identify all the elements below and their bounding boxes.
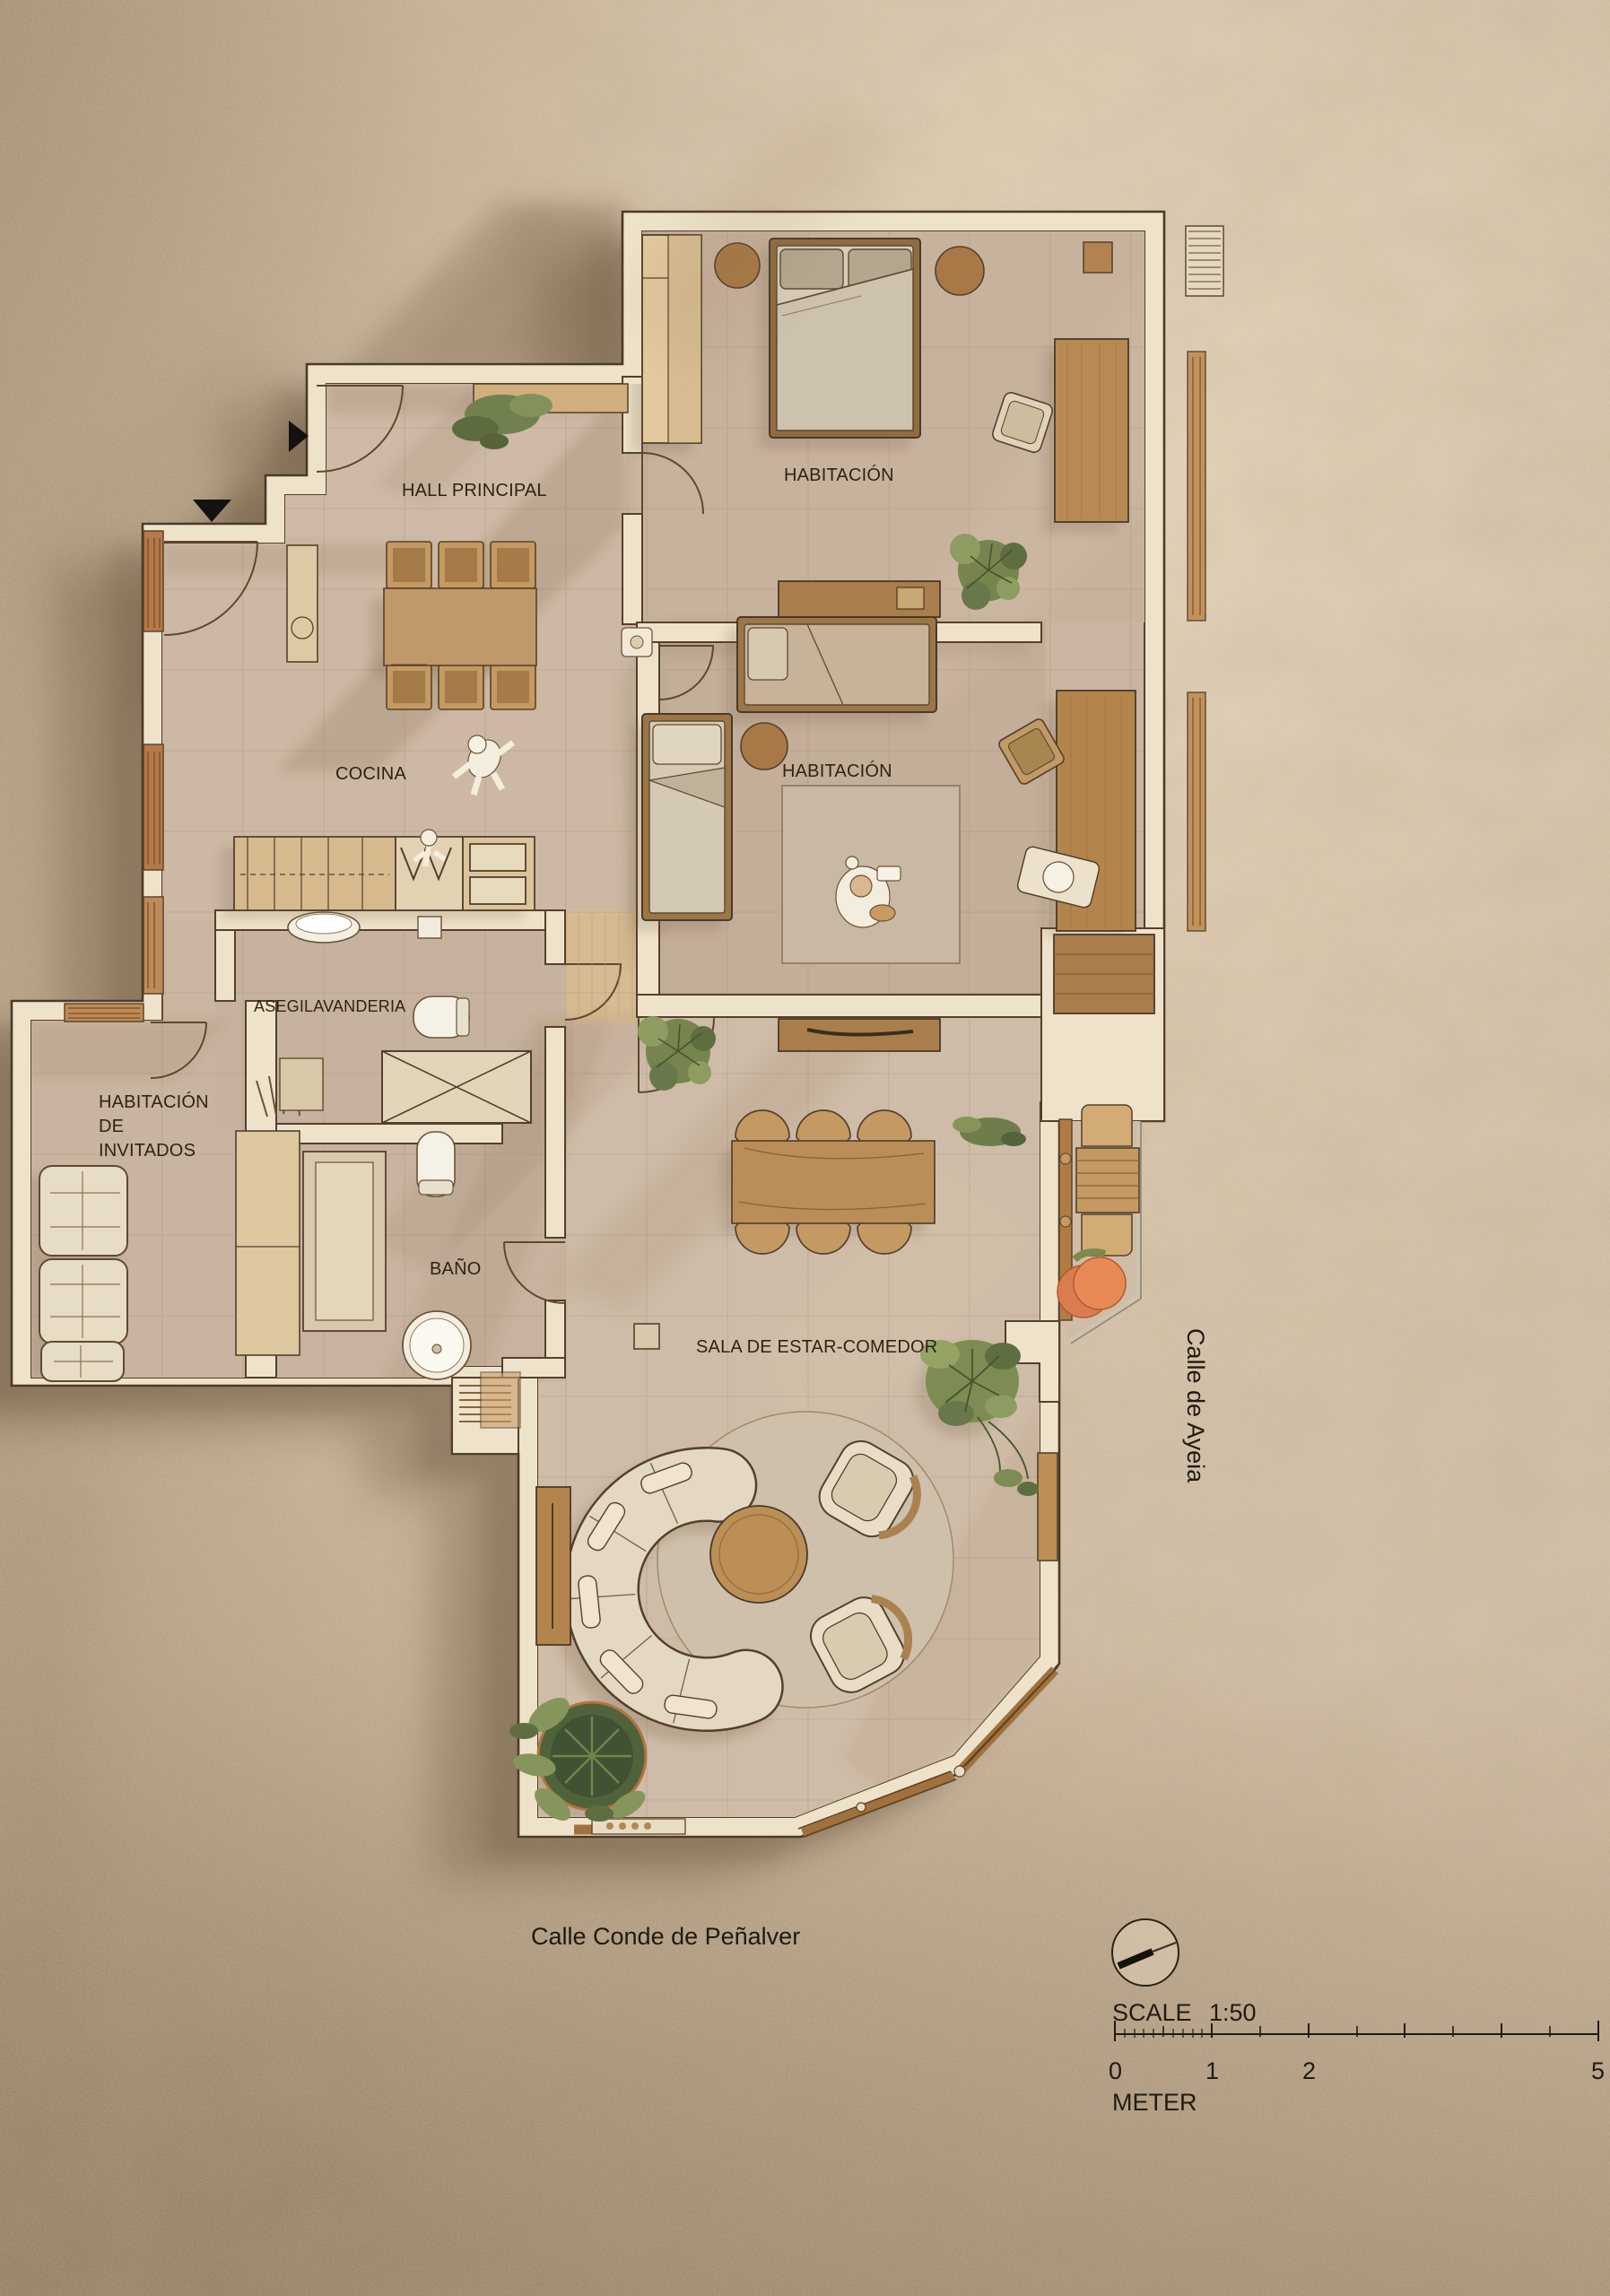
svg-text:0: 0 [1109, 2057, 1122, 2084]
svg-text:1:50: 1:50 [1209, 1999, 1257, 2026]
svg-text:Calle de Ayeia: Calle de Ayeia [1182, 1328, 1209, 1483]
svg-text:SALA DE ESTAR-COMEDOR: SALA DE ESTAR-COMEDOR [696, 1337, 937, 1357]
svg-text:METER: METER [1112, 2089, 1197, 2116]
svg-text:BAÑO: BAÑO [430, 1257, 481, 1279]
svg-text:HABITACIÓN: HABITACIÓN [782, 761, 892, 781]
svg-text:DE: DE [99, 1117, 124, 1136]
svg-text:COCINA: COCINA [335, 764, 406, 784]
svg-text:HABITACIÓN: HABITACIÓN [784, 465, 894, 485]
svg-text:INVITADOS: INVITADOS [99, 1141, 196, 1161]
svg-text:ASEGILAVANDERIA: ASEGILAVANDERIA [254, 997, 405, 1015]
svg-text:HALL PRINCIPAL: HALL PRINCIPAL [402, 481, 547, 500]
svg-text:2: 2 [1302, 2057, 1316, 2084]
svg-text:SCALE: SCALE [1112, 1999, 1192, 2026]
svg-text:Calle Conde de Peñalver: Calle Conde de Peñalver [531, 1923, 800, 1950]
svg-text:HABITACIÓN: HABITACIÓN [99, 1091, 209, 1112]
svg-text:1: 1 [1205, 2057, 1219, 2084]
svg-text:5: 5 [1591, 2057, 1605, 2084]
